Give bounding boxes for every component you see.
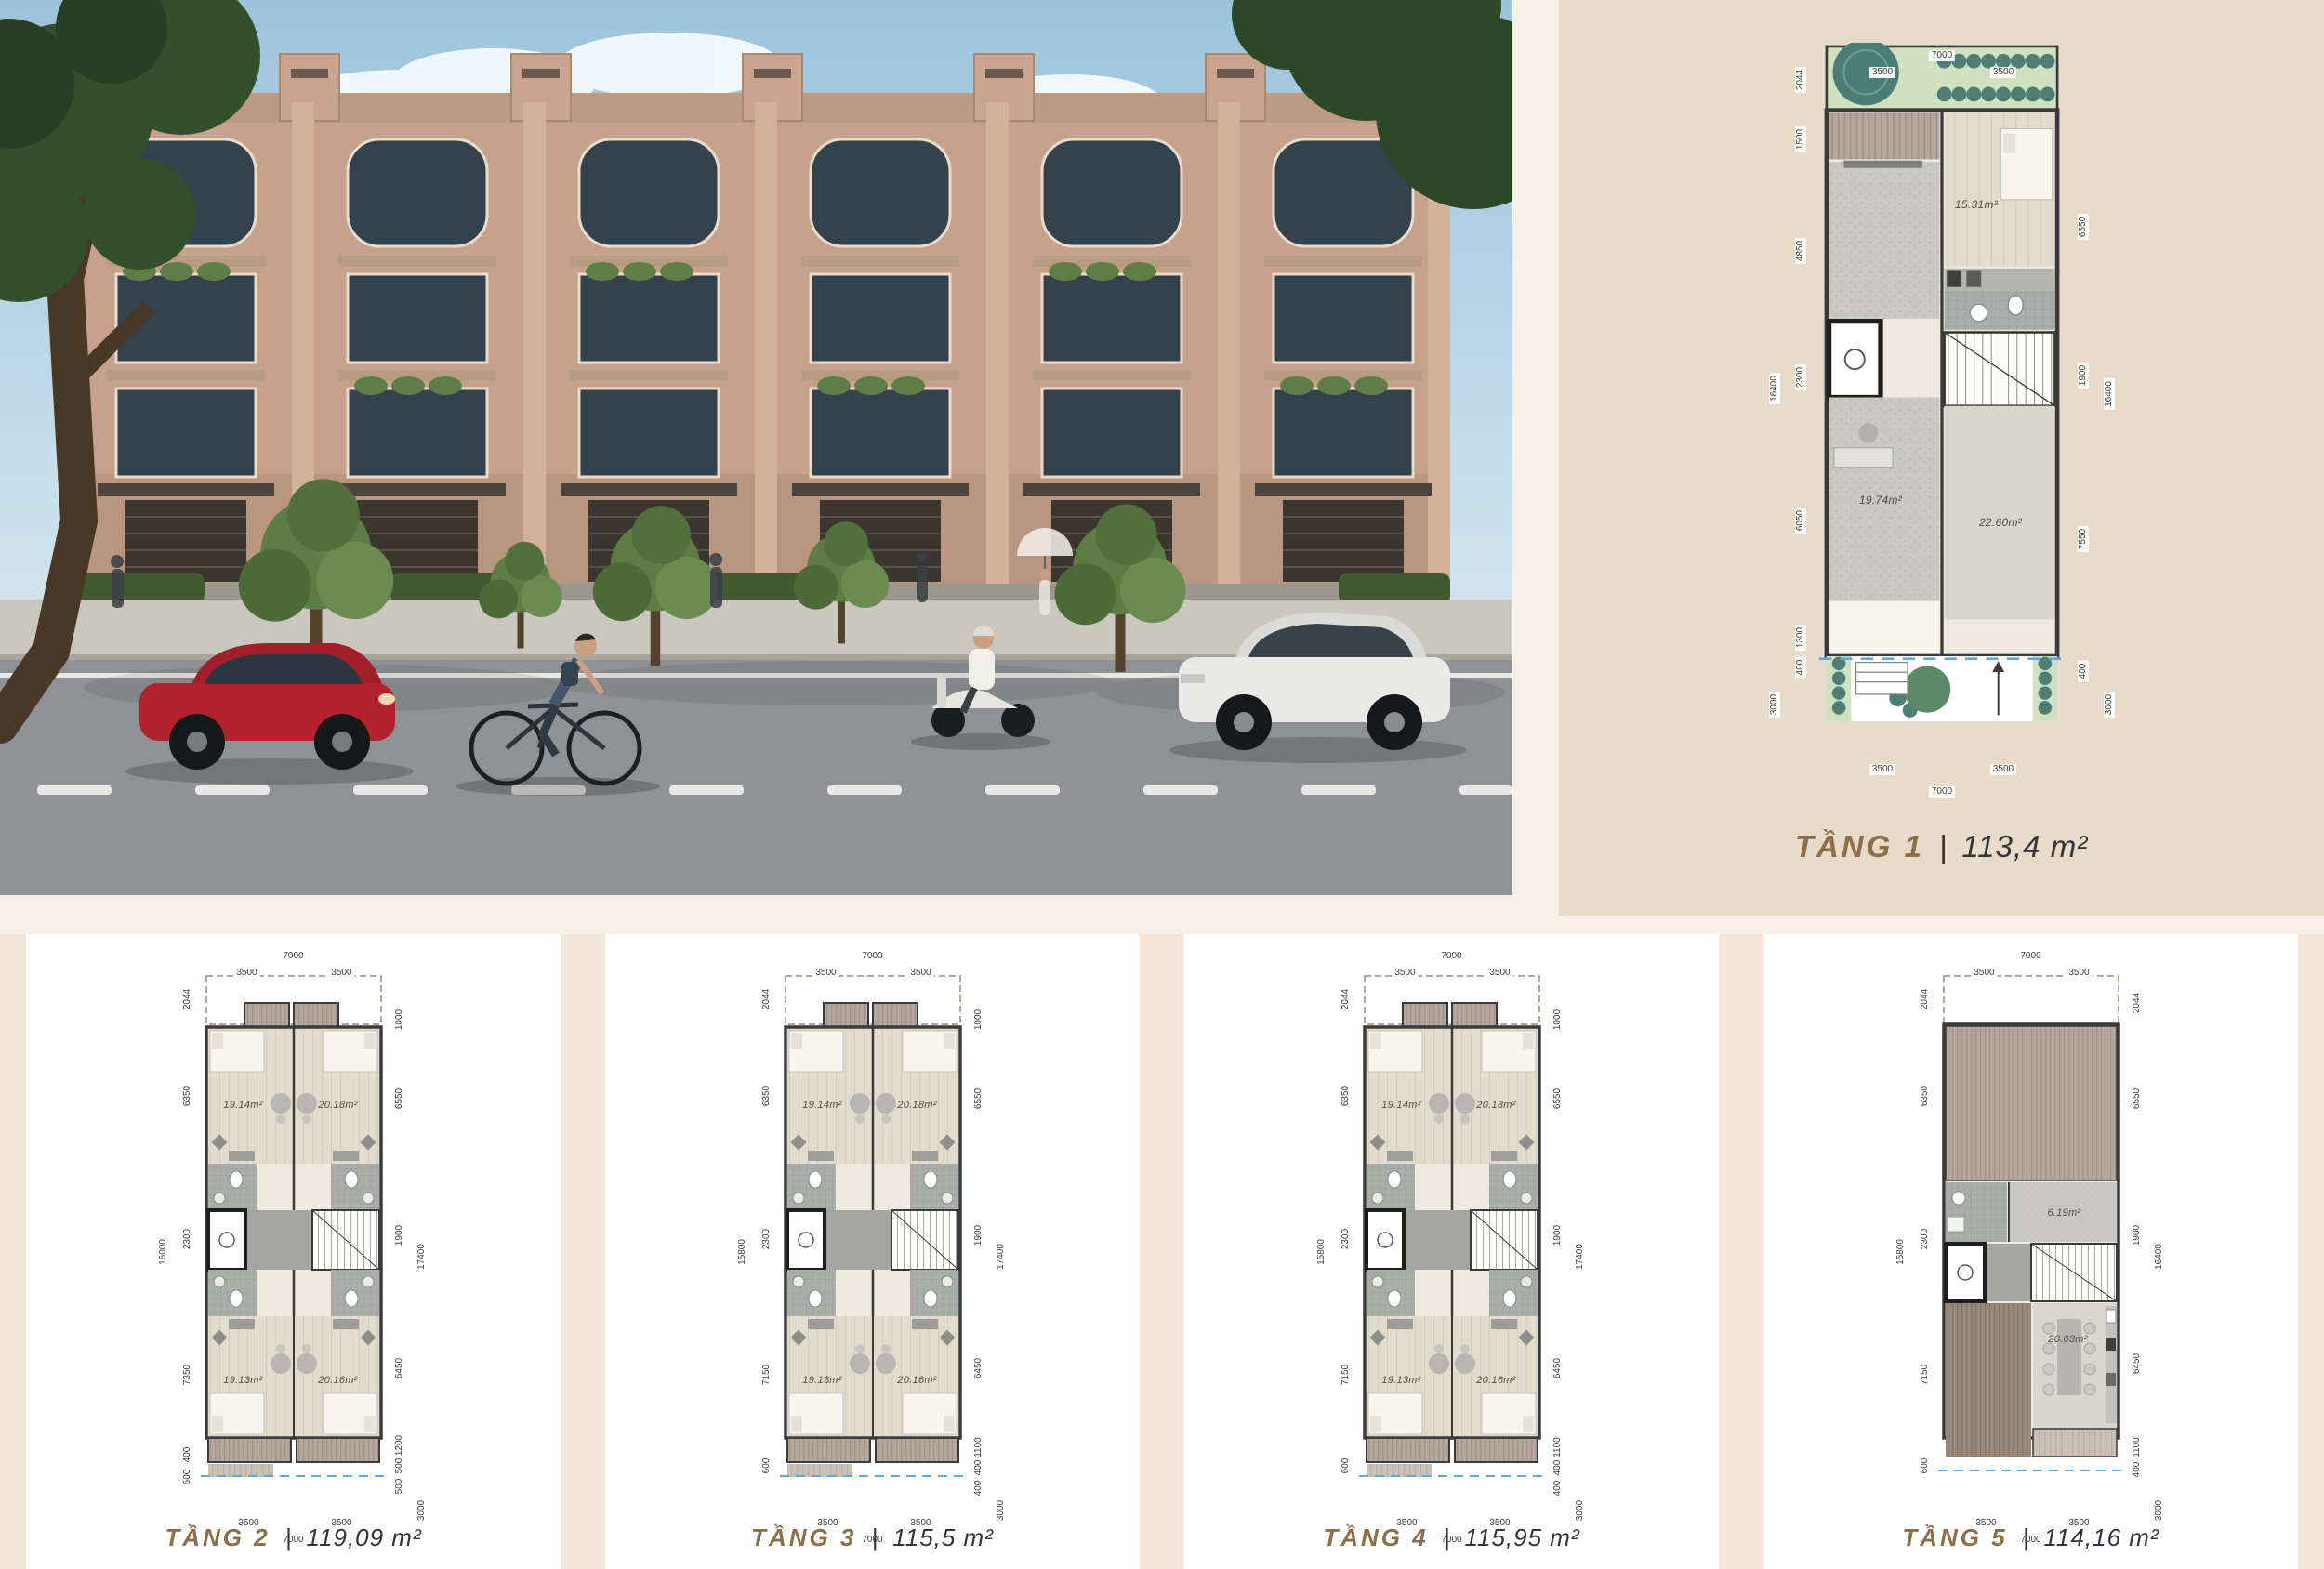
dimension-label: 2044 — [2132, 990, 2143, 1016]
dimension-label: 7000 — [2017, 951, 2043, 962]
dimension-label: 15800 — [737, 1236, 748, 1268]
dimension-label: 500 — [394, 1476, 405, 1497]
dimension-label: 2044 — [1340, 986, 1352, 1012]
dimension-label: 6350 — [1920, 1083, 1931, 1109]
floor-plan-tang3: 700035003500 204463501580023007150600 10… — [724, 945, 1022, 1549]
floor-plan-drawing — [201, 973, 387, 1508]
title-separator: | — [2023, 1523, 2029, 1552]
dimension-label: 2044 — [1920, 986, 1931, 1012]
floor1-panel: 700035003500 204415004850164002300605013… — [1559, 0, 2324, 916]
floor5-title: TẦNG 5 | 114,16 m² — [1763, 1523, 2298, 1552]
dimension-label: 1100 — [973, 1434, 984, 1460]
dimension-label: 17400 — [416, 1241, 428, 1272]
dimension-label: 7350 — [182, 1362, 193, 1388]
floor-plan-card-tang4: 700035003500 204463501580023007150600 10… — [1184, 934, 1719, 1569]
dimension-label: 3500 — [1990, 764, 2016, 775]
dimension-label: 1100 — [2132, 1434, 2143, 1460]
dimension-label: 1000 — [1552, 1007, 1564, 1033]
dimension-label: 2300 — [761, 1226, 772, 1252]
dimension-label: 1900 — [973, 1222, 984, 1248]
floor-plan-tang1: 700035003500 204415004850164002300605013… — [1747, 24, 2137, 824]
dimension-label: 6350 — [182, 1083, 193, 1109]
floor2-title: TẦNG 2 | 119,09 m² — [26, 1523, 561, 1552]
area-label: 119,09 m² — [306, 1523, 421, 1552]
floor1-title: TẦNG 1 | 113,4 m² — [1559, 829, 2324, 864]
dimension-label: 7150 — [1920, 1362, 1931, 1388]
dimension-label: 400 — [182, 1444, 193, 1466]
dimension-label: 7000 — [859, 951, 885, 962]
dimension-label: 17400 — [996, 1241, 1007, 1272]
dimension-label: 7550 — [2078, 526, 2089, 552]
hero-photo — [0, 0, 1512, 895]
dimension-label: 1000 — [973, 1007, 984, 1033]
dimension-label: 6550 — [2132, 1086, 2143, 1112]
dimension-label: 400 — [1552, 1457, 1564, 1479]
dimension-label: 7000 — [1929, 786, 1955, 798]
floor-plan-drawing — [780, 973, 966, 1508]
floor-label: TẦNG 1 — [1795, 829, 1924, 864]
dimension-label: 600 — [1920, 1456, 1931, 1477]
dimension-label: 1900 — [1552, 1222, 1564, 1248]
dimension-label: 15800 — [1316, 1236, 1327, 1268]
dimension-label: 2044 — [761, 986, 772, 1012]
dimension-label: 6350 — [1340, 1083, 1352, 1109]
floor-plan-tang4: 700035003500 204463501580023007150600 10… — [1303, 945, 1601, 1549]
title-separator: | — [1939, 829, 1948, 864]
dimension-label: 6450 — [973, 1355, 984, 1381]
floor-label: TẦNG 3 — [751, 1523, 856, 1552]
dimension-label: 2300 — [1340, 1226, 1352, 1252]
floor4-title: TẦNG 4 | 115,95 m² — [1184, 1523, 1719, 1552]
dimension-label: 3000 — [2154, 1497, 2165, 1523]
dimension-label: 400 — [1552, 1478, 1564, 1499]
dimension-label: 2300 — [1920, 1226, 1931, 1252]
dimension-label: 4850 — [1795, 238, 1806, 264]
floor3-title: TẦNG 3 | 115,5 m² — [605, 1523, 1140, 1552]
dimension-label: 16400 — [1769, 373, 1780, 404]
floor-plan-tang5: 700035003500 204463501580023007150600 20… — [1882, 945, 2180, 1549]
dimension-label: 1900 — [2078, 363, 2089, 389]
dimension-label: 500 — [394, 1456, 405, 1477]
dimension-label: 6350 — [761, 1083, 772, 1109]
dimension-label: 6550 — [1552, 1086, 1564, 1112]
dimension-label: 6050 — [1795, 508, 1806, 534]
dimension-label: 17400 — [1575, 1241, 1586, 1272]
floor-label: TẦNG 2 — [165, 1523, 270, 1552]
floor-plan-drawing — [1359, 973, 1545, 1508]
floor-label: TẦNG 5 — [1902, 1523, 2007, 1552]
area-label: 113,4 m² — [1961, 829, 2088, 864]
title-separator: | — [871, 1523, 878, 1552]
building-facade — [48, 54, 1450, 600]
dimension-label: 2044 — [182, 986, 193, 1012]
dimension-label: 7150 — [1340, 1362, 1352, 1388]
dimension-label: 400 — [2078, 661, 2089, 682]
floor-plan-drawing — [1819, 43, 2065, 748]
dimension-label: 600 — [1340, 1456, 1352, 1477]
title-separator: | — [1444, 1523, 1450, 1552]
dimension-label: 1200 — [394, 1432, 405, 1458]
dimension-label: 400 — [973, 1478, 984, 1499]
dimension-label: 400 — [973, 1457, 984, 1479]
dimension-label: 6550 — [2078, 214, 2089, 240]
dimension-label: 15800 — [1895, 1236, 1907, 1268]
dimension-label: 1900 — [394, 1222, 405, 1248]
dimension-label: 3500 — [1869, 764, 1895, 775]
dimension-label: 6450 — [394, 1355, 405, 1381]
area-label: 115,95 m² — [1464, 1523, 1579, 1552]
dimension-label: 7000 — [280, 951, 306, 962]
dimension-label: 1000 — [394, 1007, 405, 1033]
dimension-label: 600 — [761, 1456, 772, 1477]
dimension-label: 3000 — [996, 1497, 1007, 1523]
floor-plan-card-tang2: 700035003500 204463501600023007350400500… — [26, 934, 561, 1569]
area-label: 114,16 m² — [2043, 1523, 2159, 1552]
dimension-label: 400 — [2132, 1459, 2143, 1481]
dimension-label: 6450 — [1552, 1355, 1564, 1381]
dimension-label: 3000 — [1769, 692, 1780, 718]
dimension-label: 6550 — [394, 1086, 405, 1112]
title-separator: | — [285, 1523, 292, 1552]
dimension-label: 1900 — [2132, 1222, 2143, 1248]
floor-plan-card-tang5: 700035003500 204463501580023007150600 20… — [1763, 934, 2298, 1569]
floor-plan-drawing — [1938, 973, 2124, 1508]
dimension-label: 400 — [1795, 657, 1806, 679]
dimension-label: 16400 — [2154, 1241, 2165, 1272]
floor-plan-card-tang3: 700035003500 204463501580023007150600 10… — [605, 934, 1140, 1569]
dimension-label: 16400 — [2104, 378, 2115, 410]
dimension-label: 1300 — [1795, 625, 1806, 651]
dimension-label: 2300 — [1795, 364, 1806, 390]
dimension-label: 500 — [182, 1467, 193, 1488]
dimension-label: 3000 — [2104, 692, 2115, 718]
dimension-label: 1500 — [1795, 126, 1806, 152]
dimension-label: 3000 — [416, 1497, 428, 1523]
dimension-label: 1100 — [1552, 1434, 1564, 1460]
floor-plan-tang2: 700035003500 204463501600023007350400500… — [145, 945, 442, 1549]
dimension-label: 2300 — [182, 1226, 193, 1252]
floor-label: TẦNG 4 — [1323, 1523, 1428, 1552]
dimension-label: 7150 — [761, 1362, 772, 1388]
dimension-label: 2044 — [1795, 67, 1806, 93]
dimension-label: 7000 — [1438, 951, 1464, 962]
dimension-label: 6450 — [2132, 1351, 2143, 1377]
dimension-label: 16000 — [158, 1236, 169, 1268]
dimension-label: 3000 — [1575, 1497, 1586, 1523]
area-label: 115,5 m² — [892, 1523, 994, 1552]
floor-plans-row: 700035003500 204463501600023007350400500… — [0, 934, 2324, 1569]
dimension-label: 6550 — [973, 1086, 984, 1112]
brochure-page: 700035003500 204415004850164002300605013… — [0, 0, 2324, 1569]
